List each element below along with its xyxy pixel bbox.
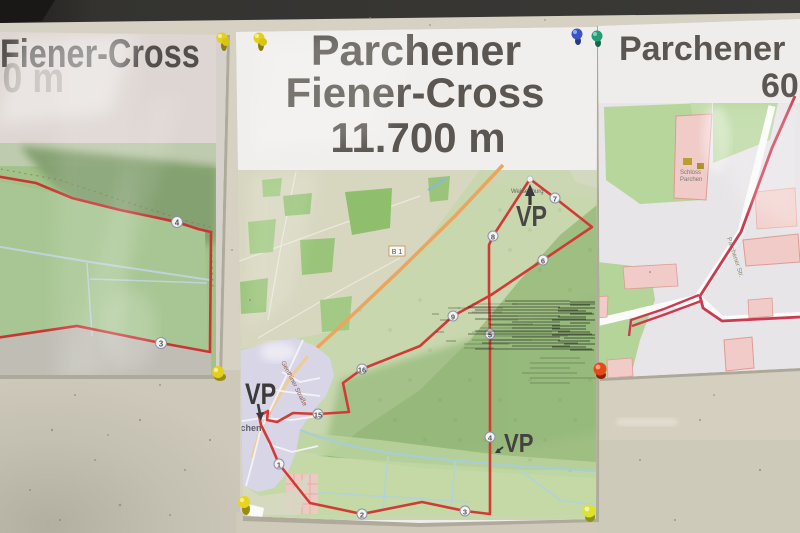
svg-text:Parchen: Parchen — [680, 177, 702, 183]
svg-text:1: 1 — [277, 461, 281, 470]
svg-text:VP: VP — [516, 199, 547, 232]
svg-text:Parchener: Parchener — [619, 30, 785, 68]
svg-text:4: 4 — [175, 219, 180, 228]
svg-text:8: 8 — [491, 233, 495, 242]
svg-text:B 1: B 1 — [392, 249, 403, 256]
svg-text:3: 3 — [159, 340, 164, 349]
svg-text:2: 2 — [360, 511, 364, 520]
svg-text:Schloss: Schloss — [680, 170, 701, 176]
svg-text:7: 7 — [553, 195, 557, 204]
svg-text:16: 16 — [358, 366, 366, 375]
svg-text:VP: VP — [245, 377, 276, 410]
svg-text:6: 6 — [541, 257, 545, 266]
svg-text:VP: VP — [504, 429, 533, 458]
svg-text:3: 3 — [463, 508, 467, 517]
svg-text:9: 9 — [451, 313, 455, 322]
svg-text:15: 15 — [314, 411, 322, 420]
